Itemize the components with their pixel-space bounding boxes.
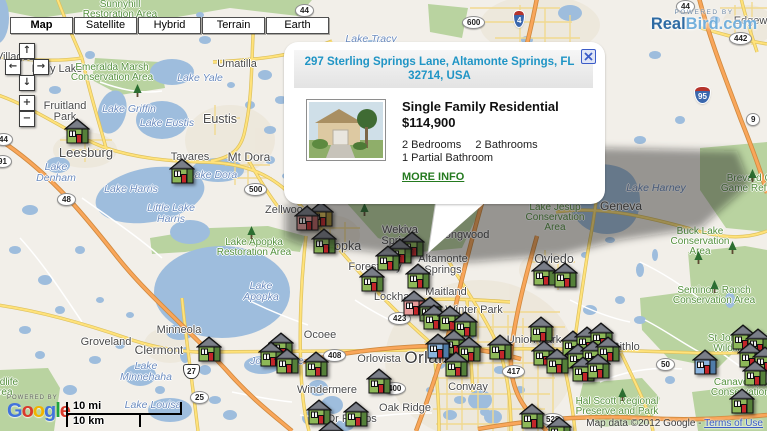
attribution: Map data ©2012 Google - Terms of Use <box>586 418 763 429</box>
property-marker-icon[interactable] <box>196 336 222 369</box>
pan-right-button[interactable]: → <box>33 59 49 75</box>
property-marker-icon[interactable] <box>311 228 337 261</box>
property-marker-icon[interactable] <box>519 403 545 431</box>
property-marker-icon[interactable] <box>546 416 572 431</box>
google-logo[interactable]: Google <box>7 401 70 421</box>
terms-of-use-link[interactable]: Terms of Use <box>704 418 763 429</box>
property-marker-icon[interactable] <box>487 334 513 367</box>
property-marker-icon[interactable] <box>443 351 469 384</box>
property-marker-icon[interactable] <box>169 158 195 191</box>
realbird-logo-segment: Real <box>651 15 686 33</box>
property-marker-icon[interactable] <box>274 348 300 381</box>
google-branding: POWERED BY Google <box>7 395 70 421</box>
map-data-copyright: Map data ©2012 Google - <box>586 418 704 429</box>
more-info-link[interactable]: MORE INFO <box>402 171 464 183</box>
google-logo-letter: g <box>44 400 55 422</box>
property-marker-icon[interactable] <box>692 349 718 382</box>
realbird-logo[interactable]: RealBird.com <box>641 16 767 32</box>
google-logo-letter: o <box>33 400 44 422</box>
map-canvas[interactable]: The VillagesLady LakeFruitlandParkLeesbu… <box>0 0 767 431</box>
property-marker-icon[interactable] <box>729 388 755 421</box>
scale-bar: 10 mi 10 km <box>66 402 186 429</box>
property-marker-icon[interactable] <box>64 118 90 151</box>
property-price: $114,900 <box>402 115 559 131</box>
property-marker-icon[interactable] <box>343 401 369 431</box>
scale-miles-label: 10 mi <box>73 400 101 412</box>
map-type-button-earth[interactable]: Earth <box>266 17 329 34</box>
bathrooms-label: 2 Bathrooms <box>475 139 537 151</box>
realbird-logo-segment: Bird <box>686 15 719 33</box>
partial-bathroom-label: 1 Partial Bathroom <box>402 152 559 165</box>
scale-km-label: 10 km <box>73 415 104 427</box>
zoom-out-button[interactable]: − <box>19 111 35 127</box>
property-marker-icon[interactable] <box>552 262 578 295</box>
google-logo-letter: o <box>22 400 33 422</box>
info-window-title: 297 Sterling Springs Lane, Altamonte Spr… <box>294 50 593 88</box>
map-type-button-map[interactable]: Map <box>10 17 73 34</box>
close-icon[interactable] <box>581 49 596 64</box>
map-type-button-hybrid[interactable]: Hybrid <box>138 17 201 34</box>
realbird-logo-segment: .com <box>719 15 758 33</box>
pan-left-button[interactable]: ← <box>5 59 21 75</box>
bedrooms-label: 2 Bedrooms <box>402 139 461 151</box>
map-type-button-terrain[interactable]: Terrain <box>202 17 265 34</box>
info-window: 297 Sterling Springs Lane, Altamonte Spr… <box>284 42 605 204</box>
property-photo <box>306 99 386 161</box>
map-type-button-satellite[interactable]: Satellite <box>74 17 137 34</box>
property-marker-icon[interactable] <box>366 368 392 401</box>
property-marker-icon[interactable] <box>359 266 385 299</box>
pan-up-button[interactable]: ↑ <box>19 43 35 59</box>
property-marker-icon[interactable] <box>318 420 344 431</box>
property-marker-icon[interactable] <box>303 351 329 384</box>
property-type: Single Family Residential <box>402 99 559 115</box>
map-type-buttons: MapSatelliteHybridTerrainEarth <box>10 17 329 34</box>
google-logo-letter: G <box>7 400 22 422</box>
property-marker-icon[interactable] <box>585 353 611 386</box>
pan-down-button[interactable]: ↓ <box>19 75 35 91</box>
realbird-branding: POWERED BY RealBird.com <box>641 9 767 32</box>
zoom-in-button[interactable]: + <box>19 95 35 111</box>
